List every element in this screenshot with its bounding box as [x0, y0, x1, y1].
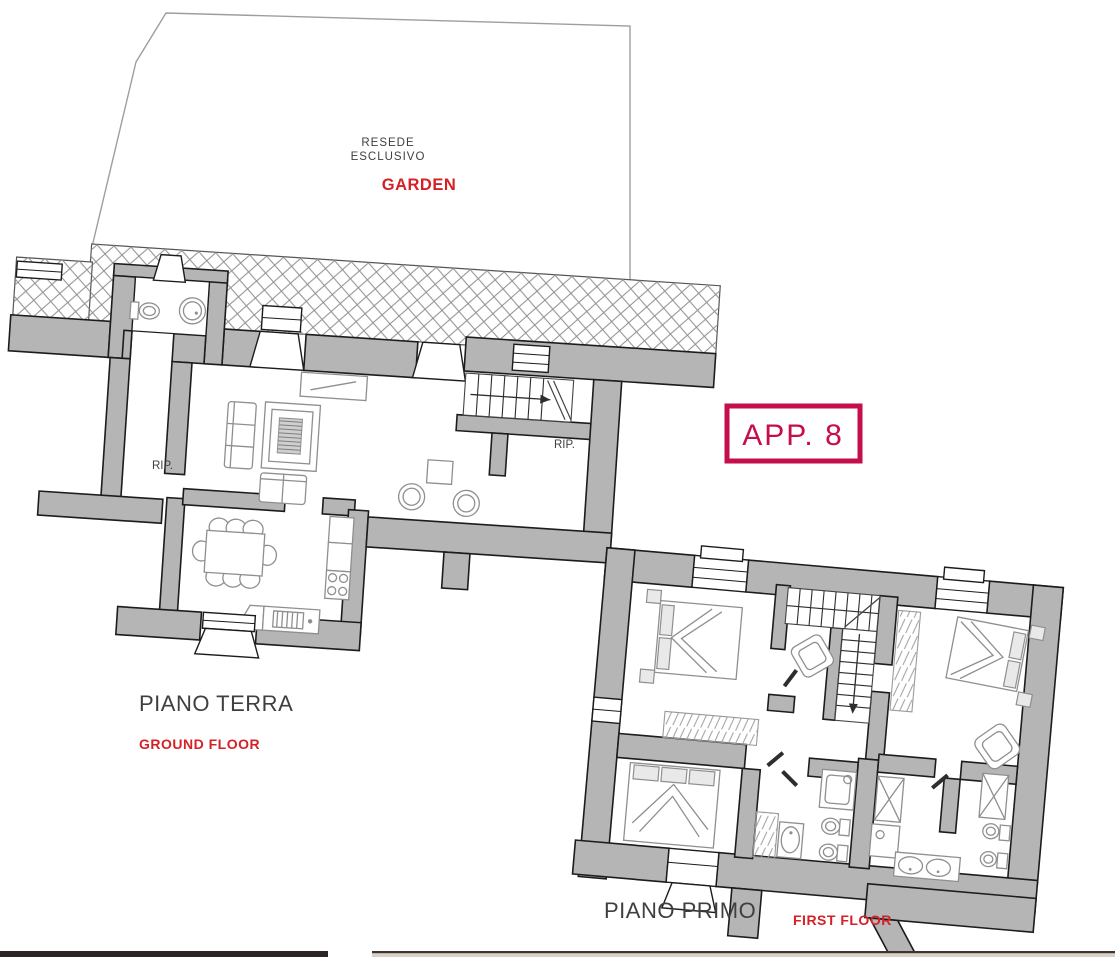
stove-icon [325, 570, 351, 600]
bath1-bidet-icon [819, 843, 848, 861]
garden-label-it-2: ESCLUSIVO [351, 151, 426, 163]
first-floor-plan [567, 537, 1064, 957]
apartment-badge-label: APP. 8 [742, 419, 844, 452]
bath1-wardrobe [753, 812, 779, 859]
loveseat [259, 473, 307, 505]
floorplan-page: RESEDE ESCLUSIVO GARDEN [0, 0, 1115, 957]
toilet-icon [130, 302, 160, 321]
coffee-table-rug [261, 402, 320, 471]
ff-bathroom1 [777, 766, 857, 863]
double-sink-icon [894, 852, 961, 882]
bottom-strip-beige [372, 953, 1115, 957]
shower1-icon [819, 769, 856, 810]
shower2-icon [874, 776, 904, 822]
apartment-badge: APP. 8 [727, 406, 860, 461]
gf-living-furniture [222, 367, 487, 517]
side-table-chairs [398, 458, 482, 517]
garden-label-en: GARDEN [382, 176, 457, 194]
bath1-sink-icon [777, 822, 804, 859]
bath2-bidet-icon [980, 851, 1008, 869]
bed1-double-bed [639, 589, 743, 690]
gf-rip-label-1: RIP. [152, 460, 173, 472]
ground-floor-title: PIANO TERRA [139, 691, 293, 716]
floorplan-drawing: RESEDE ESCLUSIVO GARDEN [0, 0, 1115, 957]
bed3-double-bed [624, 763, 720, 849]
sofa [224, 401, 256, 469]
bath2-toilet-icon [982, 823, 1010, 841]
dining-table-chairs [190, 516, 278, 589]
radiator-console [300, 372, 367, 400]
ground-floor-subtitle: GROUND FLOOR [139, 736, 260, 752]
bottom-page-edge [0, 951, 1115, 957]
garden-label-it-1: RESEDE [361, 137, 414, 149]
kitchen-sink-icon [262, 606, 319, 634]
first-floor-title: PIANO PRIMO [604, 898, 756, 923]
gf-rip-label-2: RIP. [554, 439, 575, 451]
dining-window-splay [195, 612, 262, 658]
bottom-bar-dark [0, 951, 328, 957]
first-floor-subtitle: FIRST FLOOR [793, 912, 892, 928]
bottom-strip-line [372, 951, 1115, 953]
shower3-icon [979, 773, 1009, 819]
gf-stairs [463, 373, 574, 422]
bath1-toilet-icon [821, 817, 850, 835]
